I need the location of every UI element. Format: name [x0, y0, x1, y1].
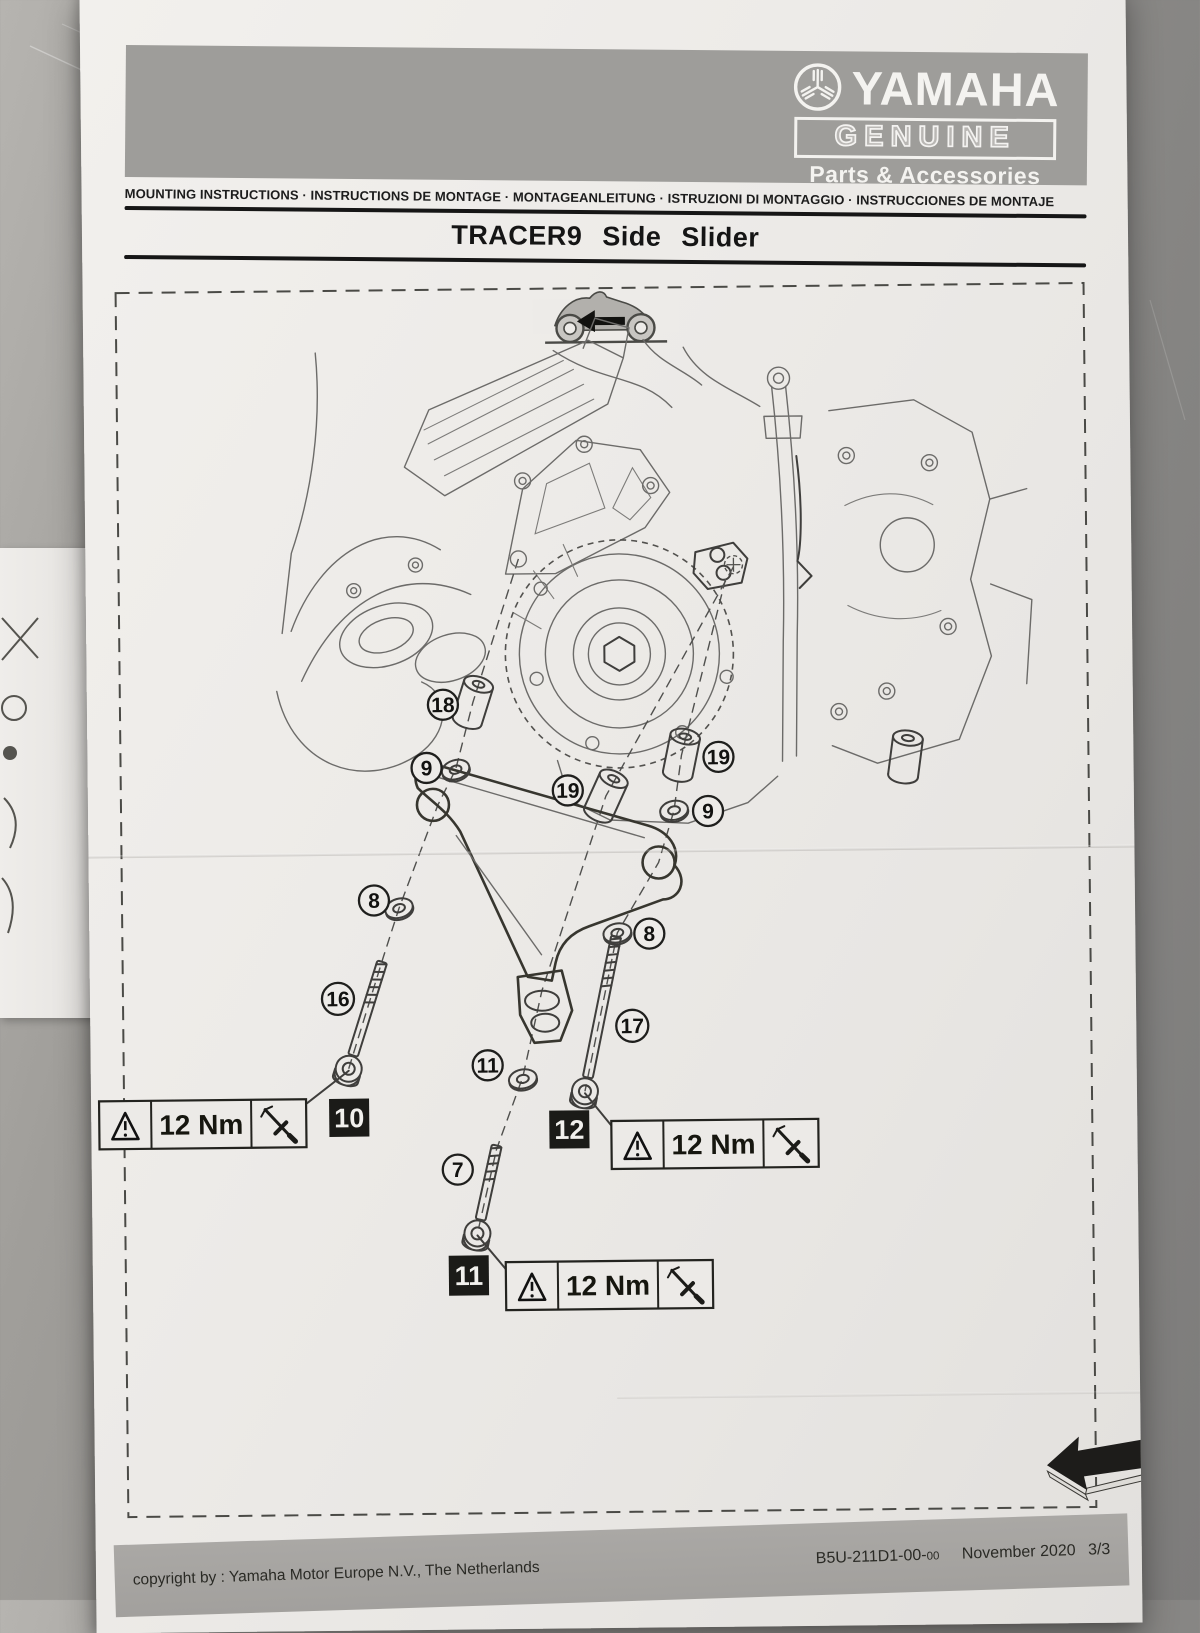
torque-value: 12 Nm — [159, 1109, 243, 1141]
bolt-16 — [331, 958, 394, 1089]
instruction-sheet: YAMAHA GENUINE Parts & Accessories MOUNT… — [79, 0, 1142, 1633]
photo-scene: YAMAHA GENUINE Parts & Accessories MOUNT… — [0, 0, 1200, 1600]
callout-19-right: 19 — [707, 746, 731, 769]
callout-19-mid: 19 — [556, 780, 580, 803]
exploded-diagram: 18 9 19 19 9 8 8 16 17 11 7 — [79, 0, 1142, 1633]
callout-9-left: 9 — [421, 757, 433, 780]
page-indicator: 3/3 — [1088, 1541, 1111, 1559]
doc-date: November 2020 — [962, 1542, 1076, 1563]
part-number-suffix: 00 — [926, 1550, 939, 1562]
step-10: 10 — [334, 1103, 364, 1133]
callout-18: 18 — [431, 694, 455, 717]
callout-7: 7 — [452, 1159, 464, 1182]
callout-8-right: 8 — [643, 923, 655, 946]
copyright-text: copyright by : Yamaha Motor Europe N.V.,… — [133, 1559, 540, 1590]
callout-11: 11 — [476, 1055, 499, 1078]
step-11: 11 — [454, 1261, 483, 1291]
callout-17: 17 — [620, 1015, 644, 1038]
engine-line-art — [273, 314, 1034, 828]
part-number: B5U-211D1-00- — [816, 1547, 927, 1567]
callout-16: 16 — [326, 988, 350, 1011]
previous-page-arrow-icon — [1045, 1431, 1143, 1503]
torque-value: 12 Nm — [671, 1129, 755, 1161]
torque-label-left: 12 Nm 10 — [99, 1071, 370, 1150]
diagram-frame — [116, 283, 1097, 1517]
callout-9-right: 9 — [702, 800, 714, 823]
slider-bracket — [415, 761, 683, 1044]
torque-value: 12 Nm — [566, 1270, 650, 1302]
motorcycle-direction-icon — [533, 291, 680, 343]
step-12: 12 — [554, 1115, 584, 1145]
washer-9-right — [659, 798, 690, 824]
document-reference: B5U-211D1-00-00 November 2020 3/3 — [816, 1541, 1111, 1568]
washer-11 — [507, 1067, 538, 1093]
callout-8-left: 8 — [368, 890, 380, 913]
